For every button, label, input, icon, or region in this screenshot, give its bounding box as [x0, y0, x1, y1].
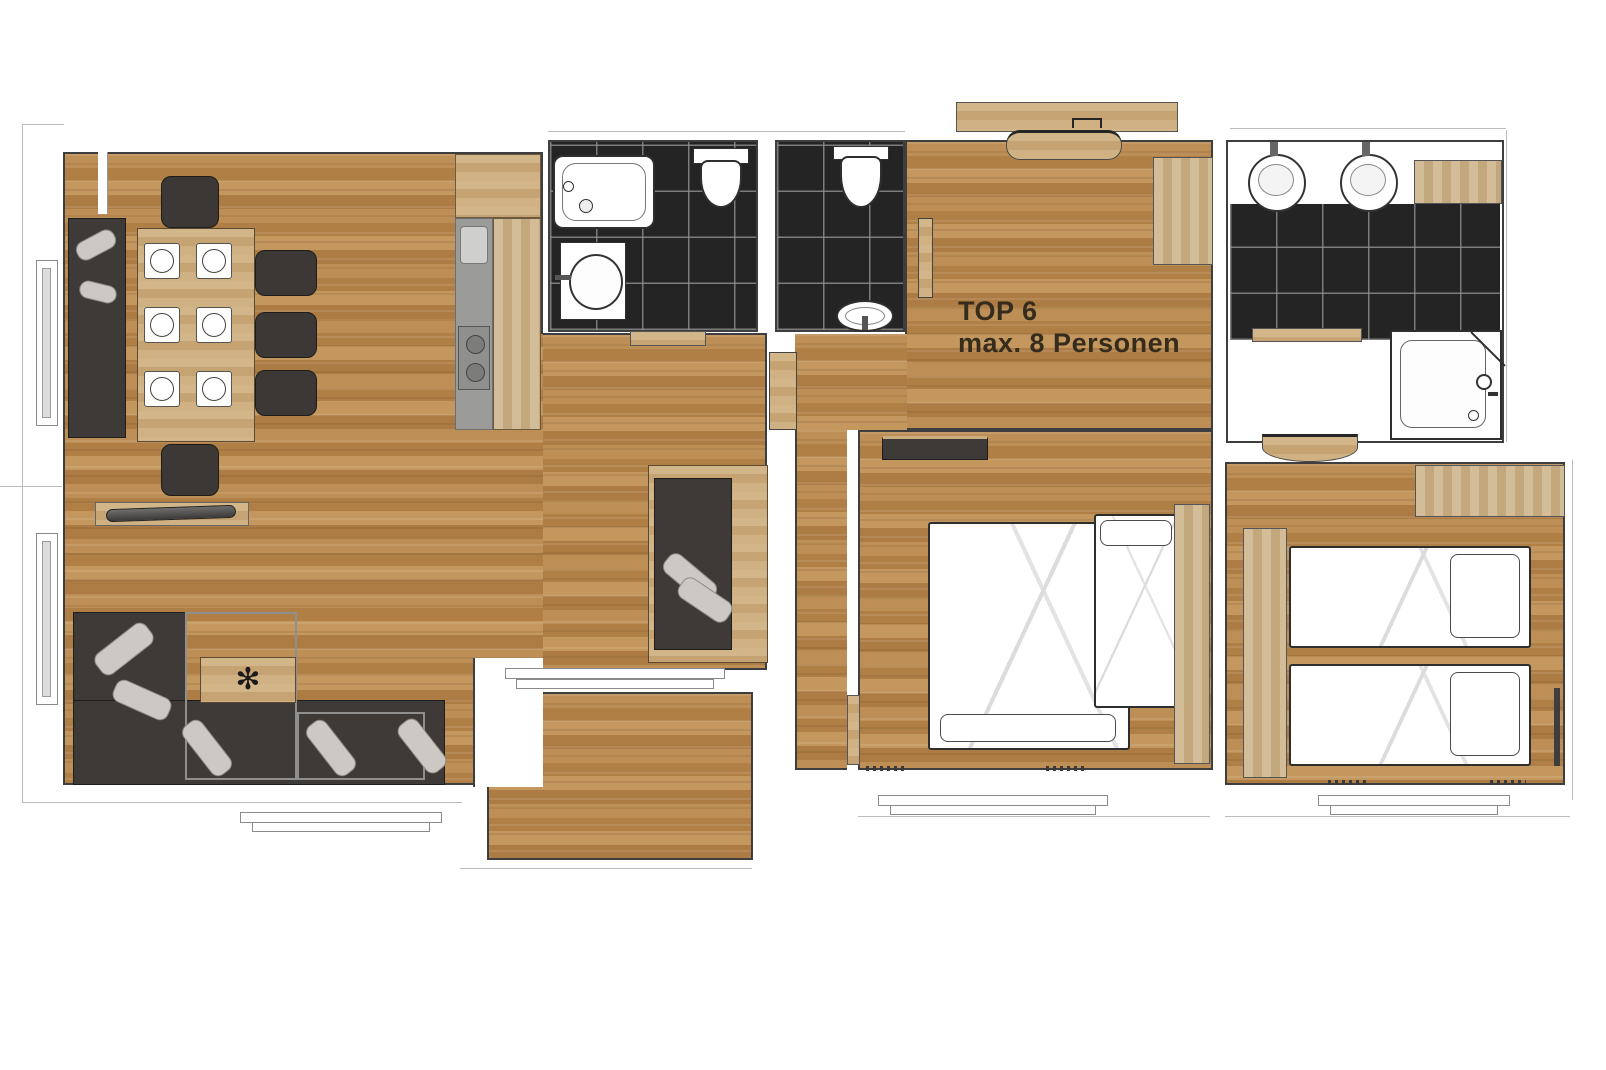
living-door-leaf — [769, 352, 797, 430]
plate-icon — [150, 249, 174, 273]
faucet-icon — [1270, 142, 1278, 156]
faucet-icon — [1362, 142, 1370, 156]
burner-icon — [466, 335, 485, 354]
plate-icon — [202, 313, 226, 337]
dining-chair — [161, 176, 219, 228]
entrance-porch — [956, 102, 1178, 132]
window-break — [866, 766, 904, 771]
kitchen-sink — [460, 226, 488, 264]
faucet-icon — [555, 275, 571, 280]
burner-icon — [466, 363, 485, 382]
exterior-line — [858, 816, 1210, 817]
exterior-line — [22, 124, 64, 125]
bedroom2-wardrobe — [1243, 528, 1287, 778]
bedroom1-wardrobe — [1174, 504, 1210, 764]
dining-chair — [255, 250, 317, 296]
window-break — [1046, 766, 1084, 771]
window-break — [1328, 780, 1366, 785]
shower-fixture-icon — [1476, 374, 1492, 390]
corridor-floor — [795, 430, 847, 770]
plant-icon: ✻ — [235, 663, 260, 696]
entrance-door-swing — [1006, 130, 1122, 160]
coffee-table: ✻ — [200, 657, 296, 703]
wall-stub — [98, 152, 108, 214]
bed-pillow — [1100, 520, 1172, 546]
bath-mat — [1252, 328, 1362, 342]
tub-drain-icon — [579, 199, 593, 213]
hall-wardrobe — [1153, 157, 1213, 265]
washbasin-icon — [1350, 164, 1386, 196]
plate-icon — [150, 377, 174, 401]
radiator — [1554, 688, 1560, 766]
bedroom2-shelf — [1415, 465, 1565, 517]
shower — [1390, 330, 1502, 440]
bathroom2-tiles — [1230, 204, 1500, 340]
shower-valve-icon — [1488, 392, 1498, 396]
window-sill — [252, 822, 430, 832]
window-sill — [1330, 805, 1498, 815]
bedroom1-dresser — [882, 436, 988, 460]
wc-basin — [836, 300, 894, 332]
bathroom2 — [1226, 140, 1504, 443]
apartment-label-line1: TOP 6 — [958, 296, 1038, 327]
corridor-floor — [795, 334, 907, 430]
cooktop — [458, 326, 490, 390]
kitchen-cabinets — [493, 218, 541, 430]
exterior-line — [22, 124, 23, 802]
dining-chair — [255, 312, 317, 358]
exterior-line — [1225, 816, 1570, 817]
exterior-line — [22, 802, 462, 803]
bed-pillow — [940, 714, 1116, 742]
dining-chair — [161, 444, 219, 496]
wc-door-leaf — [918, 218, 933, 298]
exterior-line — [0, 486, 62, 487]
wall-living-bath — [541, 152, 543, 334]
sliding-door — [505, 668, 725, 679]
washbasin-icon — [569, 254, 623, 310]
bathroom1-door-threshold — [630, 331, 706, 346]
window-break — [1490, 780, 1526, 785]
bathtub — [553, 155, 655, 229]
plate-icon — [150, 313, 174, 337]
sink-cabinet — [560, 242, 626, 320]
bedroom2-door-swing — [1262, 434, 1358, 462]
exterior-line — [1230, 128, 1506, 129]
bed-pillow — [1450, 672, 1520, 756]
apartment-label-line2: max. 8 Personen — [958, 328, 1180, 359]
entrance-door-handle — [1072, 118, 1102, 128]
exterior-line — [460, 868, 752, 869]
tub-faucet-icon — [563, 181, 574, 192]
floor-plan: TOP 6 max. 8 Personen ✻ — [0, 0, 1606, 1070]
exterior-line — [1572, 460, 1573, 800]
kitchen-tall-cabinet — [455, 154, 541, 218]
bathroom2-shelf — [1414, 160, 1502, 204]
bedroom1-door-threshold — [847, 695, 860, 765]
dining-chair — [255, 370, 317, 416]
sideboard — [68, 218, 126, 438]
window-sill — [890, 805, 1096, 815]
bed-pillow — [1450, 554, 1520, 638]
exterior-line — [1506, 130, 1507, 442]
window — [36, 260, 58, 426]
exterior-line — [548, 131, 905, 132]
window — [36, 533, 58, 705]
plate-icon — [202, 377, 226, 401]
sliding-door — [516, 679, 714, 689]
plate-icon — [202, 249, 226, 273]
shower-drain-icon — [1468, 410, 1479, 421]
faucet-icon — [862, 316, 868, 330]
washbasin-icon — [1258, 164, 1294, 196]
